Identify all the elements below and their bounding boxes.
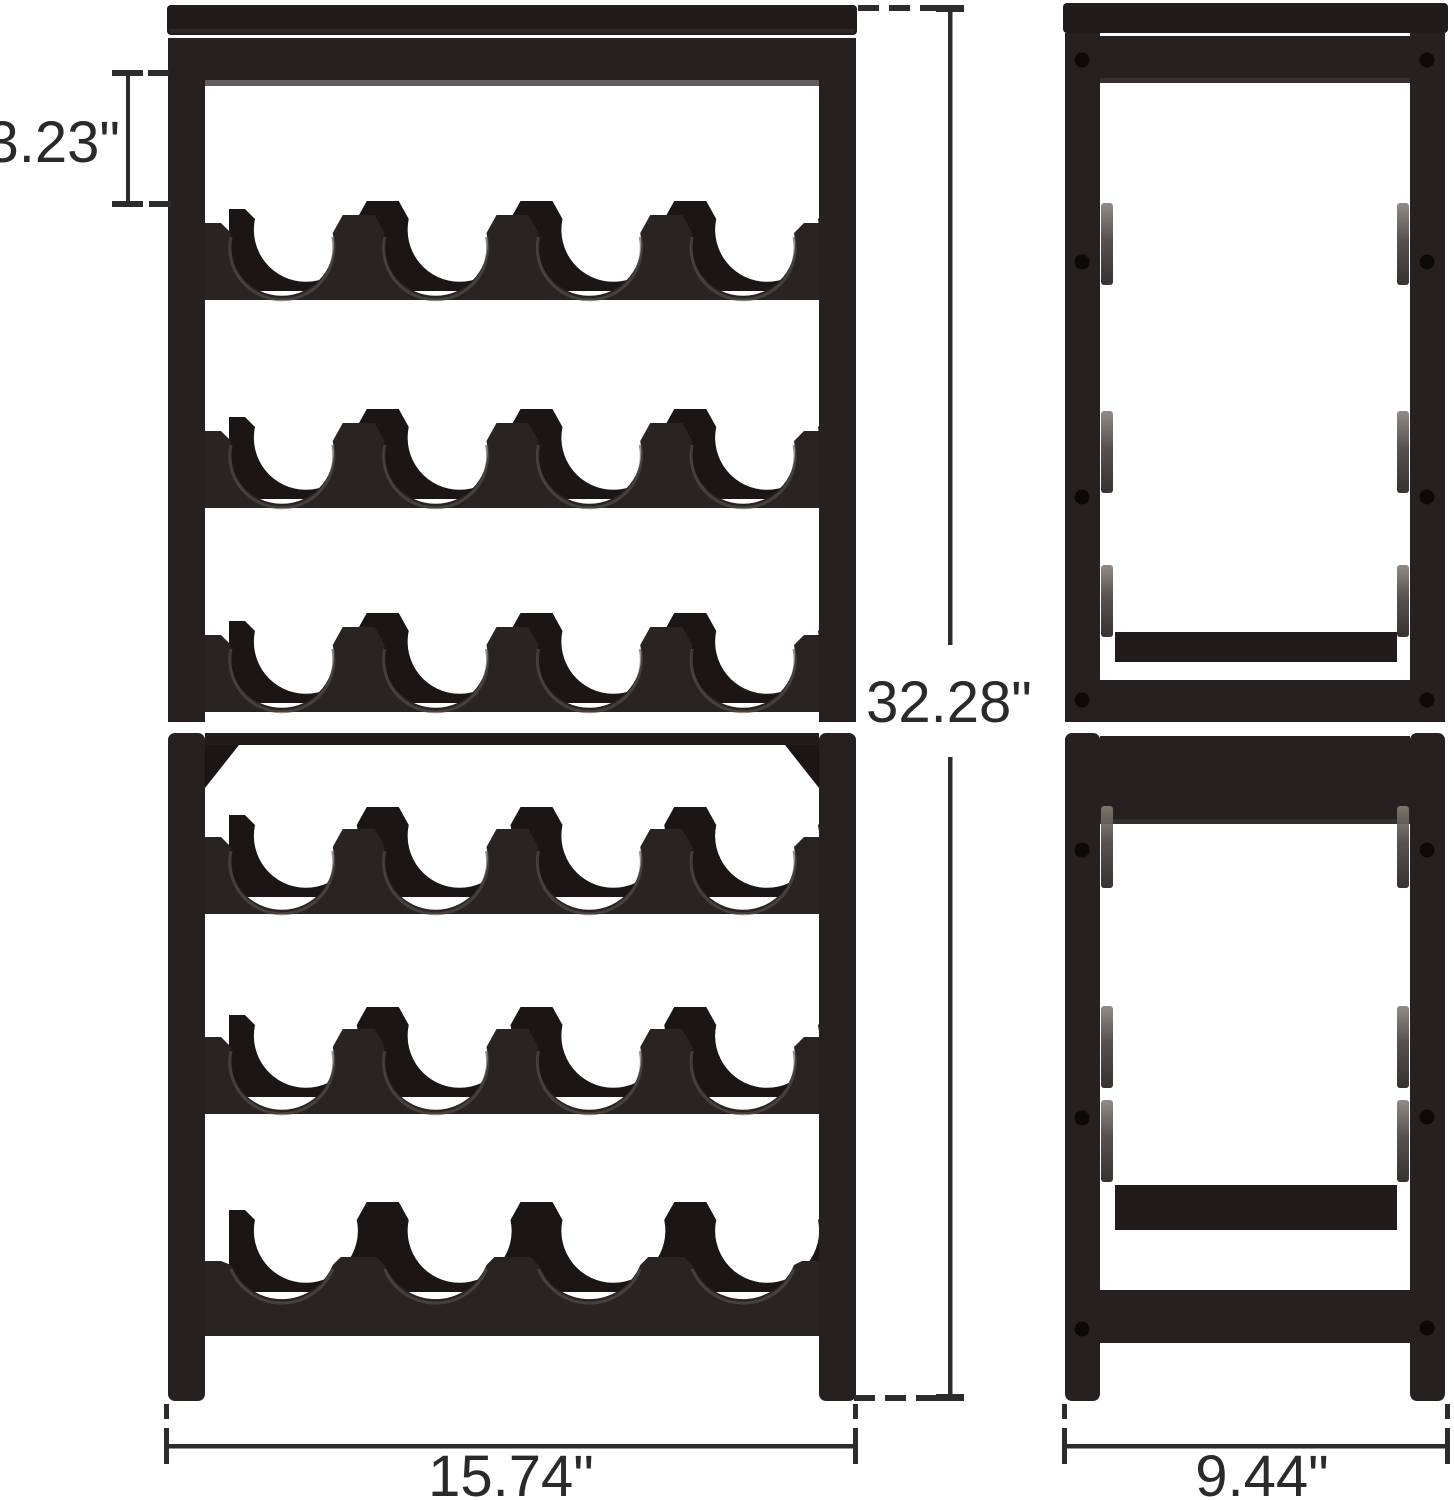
dimension-overall-height: 32.28" [854, 5, 1032, 1401]
screw [1420, 693, 1435, 708]
side-upper-rails [1100, 36, 1410, 722]
screw [1420, 1110, 1435, 1125]
side-lower-rails [1100, 736, 1410, 1343]
leg [819, 733, 856, 1401]
screw [1075, 1111, 1090, 1126]
screw [1075, 255, 1090, 270]
leg [819, 38, 856, 722]
top-panel-edge [170, 29, 854, 33]
dimension-line [948, 10, 953, 645]
dimension-label-overall-width: 15.74" [428, 1444, 594, 1500]
leg [1410, 733, 1445, 1401]
front-bottle-rails [205, 215, 820, 1336]
leg [1410, 33, 1445, 722]
screw [1420, 1321, 1435, 1336]
screw [1075, 693, 1090, 708]
screw [1420, 490, 1435, 505]
bottom-rail [1100, 680, 1410, 722]
leg [168, 733, 205, 1401]
screw [1420, 843, 1435, 858]
dimension-diagram: 3.23" 32.28" 15.74" 9.44" [0, 0, 1454, 1500]
dimension-label-overall-height: 32.28" [866, 670, 1032, 735]
screw [1420, 255, 1435, 270]
screw [1075, 490, 1090, 505]
leg [1065, 33, 1100, 722]
top-rail [1100, 736, 1410, 824]
corner-brace [205, 745, 239, 788]
dimension-overall-width: 15.74" [164, 1404, 858, 1500]
dimension-label-shelf-opening-height: 3.23" [0, 110, 120, 175]
dimension-line [126, 73, 130, 205]
unit-junction [205, 733, 819, 788]
screw [1075, 843, 1090, 858]
top-panel [1063, 3, 1448, 33]
dimension-overall-depth: 9.44" [1062, 1404, 1450, 1500]
screw [1075, 53, 1090, 68]
screw [1420, 53, 1435, 68]
front-view [167, 5, 857, 1401]
scallop-highlights [230, 237, 795, 1303]
screw [1075, 1322, 1090, 1337]
rear-bottle-rails [229, 201, 844, 1292]
shelf-edge [1115, 1185, 1397, 1230]
leg [168, 38, 205, 722]
dimension-shelf-opening-height: 3.23" [0, 70, 171, 207]
leg [1065, 733, 1100, 1401]
corner-brace [785, 745, 819, 788]
dimension-line [948, 757, 953, 1397]
diagram-svg: 3.23" 32.28" 15.74" 9.44" [0, 0, 1454, 1500]
dimension-label-overall-depth: 9.44" [1195, 1444, 1328, 1500]
shelf-edge [1115, 632, 1397, 662]
side-view [1063, 3, 1448, 1401]
front-top-rail [168, 38, 856, 86]
bottom-rail [1100, 1290, 1410, 1343]
